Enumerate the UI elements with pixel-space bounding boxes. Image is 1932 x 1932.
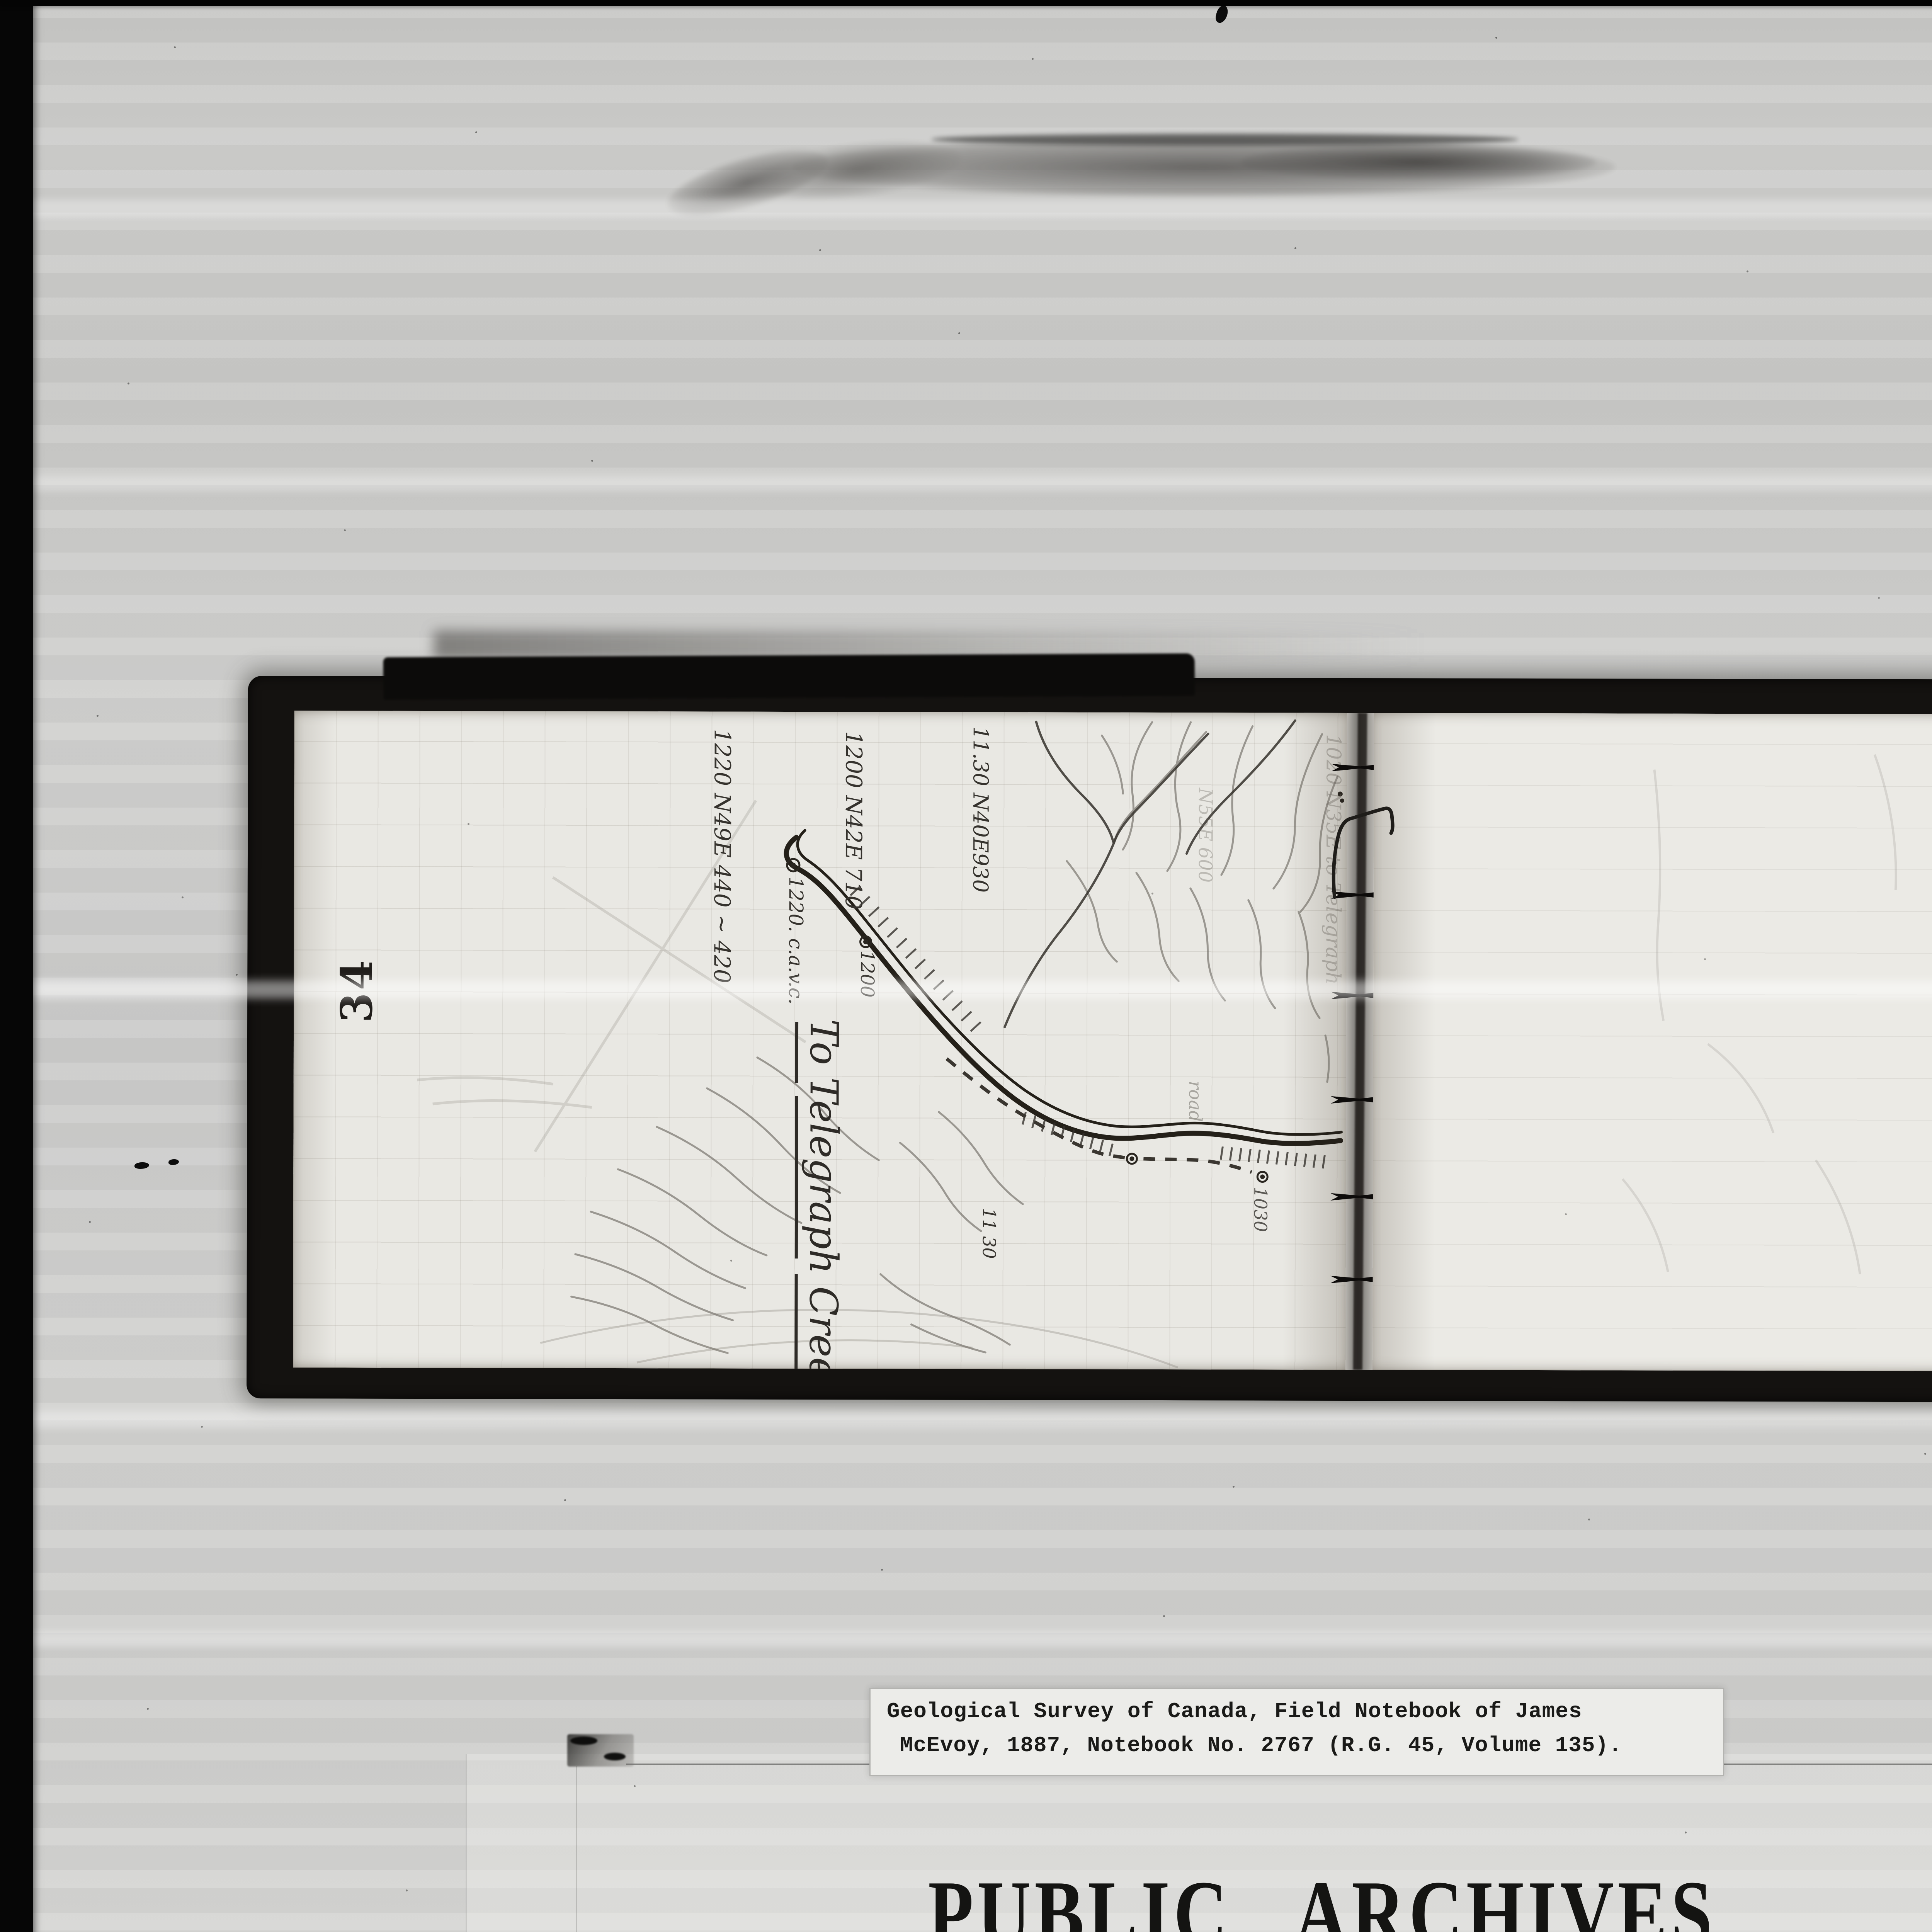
backing-sheet-edge-left-inner — [576, 1766, 577, 1932]
caption-line-2: McEvoy, 1887, Notebook No. 2767 (R.G. 45… — [900, 1733, 1622, 1758]
right-page — [1372, 713, 1932, 1372]
binding — [1345, 713, 1374, 1370]
film-dash-left-2 — [168, 1159, 179, 1165]
film-blot-top-1 — [1214, 4, 1229, 24]
notebook-cover-overhang — [383, 653, 1195, 700]
tape-patch — [567, 1734, 634, 1767]
map-sketch-svg: 1200 N42E 710 1220 N49E 440 ~ 420 11.30 … — [293, 711, 1347, 1370]
contour-arcs-bottom — [540, 1309, 1178, 1367]
smudge-top-line — [931, 134, 1519, 145]
faint-scratch-lines — [417, 800, 806, 1152]
notebook-pages: 1200 N42E 710 1220 N49E 440 ~ 420 11.30 … — [293, 711, 1932, 1372]
map-annotation-bearing-1: 1200 N42E 710 — [840, 731, 867, 910]
contour-lines-northeast — [1066, 722, 1338, 1082]
backing-sheet-edge-left-outer — [466, 1754, 467, 1932]
archive-stamp-line-1: PUBLIC ARCHIVES — [928, 1859, 1716, 1932]
tape-patch-blot — [604, 1753, 626, 1760]
caption-card: Geological Survey of Canada, Field Noteb… — [869, 1688, 1724, 1776]
film-left-edge — [0, 0, 33, 1932]
microfilm-frame: 1200 N42E 710 1220 N49E 440 ~ 420 11.30 … — [0, 0, 1932, 1932]
creek-label-underline — [796, 1022, 797, 1370]
creek-destination-label: To Telegraph Creek — [801, 1019, 847, 1370]
map-annotation-bearing-4: N55E 600 — [1194, 787, 1216, 883]
map-annotation-station-1: 1220. c.a.v.c. — [784, 877, 807, 1005]
tributary-streams — [1005, 720, 1295, 1028]
ink-smudge-streak — [665, 120, 1631, 213]
map-annotation-road: road — [1185, 1081, 1206, 1122]
tape-patch-blot — [570, 1736, 597, 1745]
exposure-streak — [0, 1411, 1932, 1428]
map-annotation-time-1: 11 30 — [979, 1208, 1000, 1259]
film-top-edge — [0, 0, 1932, 6]
bank-hatching — [850, 886, 1325, 1168]
binding-gutter-line — [1353, 713, 1367, 1370]
map-annotation-station-3: 1030 — [1250, 1187, 1271, 1232]
smudge-dark-core — [1240, 144, 1596, 180]
map-annotation-note-telegraph: 1020 N35E to Telegraph — [1321, 734, 1345, 985]
notebook: 1200 N42E 710 1220 N49E 440 ~ 420 11.30 … — [247, 676, 1932, 1403]
map-annotation-station-2: 1200 — [856, 950, 878, 997]
smudge-taper — [751, 131, 964, 210]
exposure-streak — [0, 476, 1932, 492]
caption-line-1: Geological Survey of Canada, Field Noteb… — [887, 1699, 1582, 1724]
film-dash-left-1 — [134, 1162, 149, 1169]
map-annotation-bearing-2: 1220 N49E 440 ~ 420 — [709, 729, 735, 983]
exposure-streak — [0, 1631, 1932, 1647]
dust-specks — [0, 0, 2, 2]
page-number: 34 — [332, 958, 382, 1023]
map-annotation-bearing-3: 11.30 N40E930 — [968, 726, 993, 893]
left-page: 1200 N42E 710 1220 N49E 440 ~ 420 11.30 … — [293, 711, 1347, 1370]
